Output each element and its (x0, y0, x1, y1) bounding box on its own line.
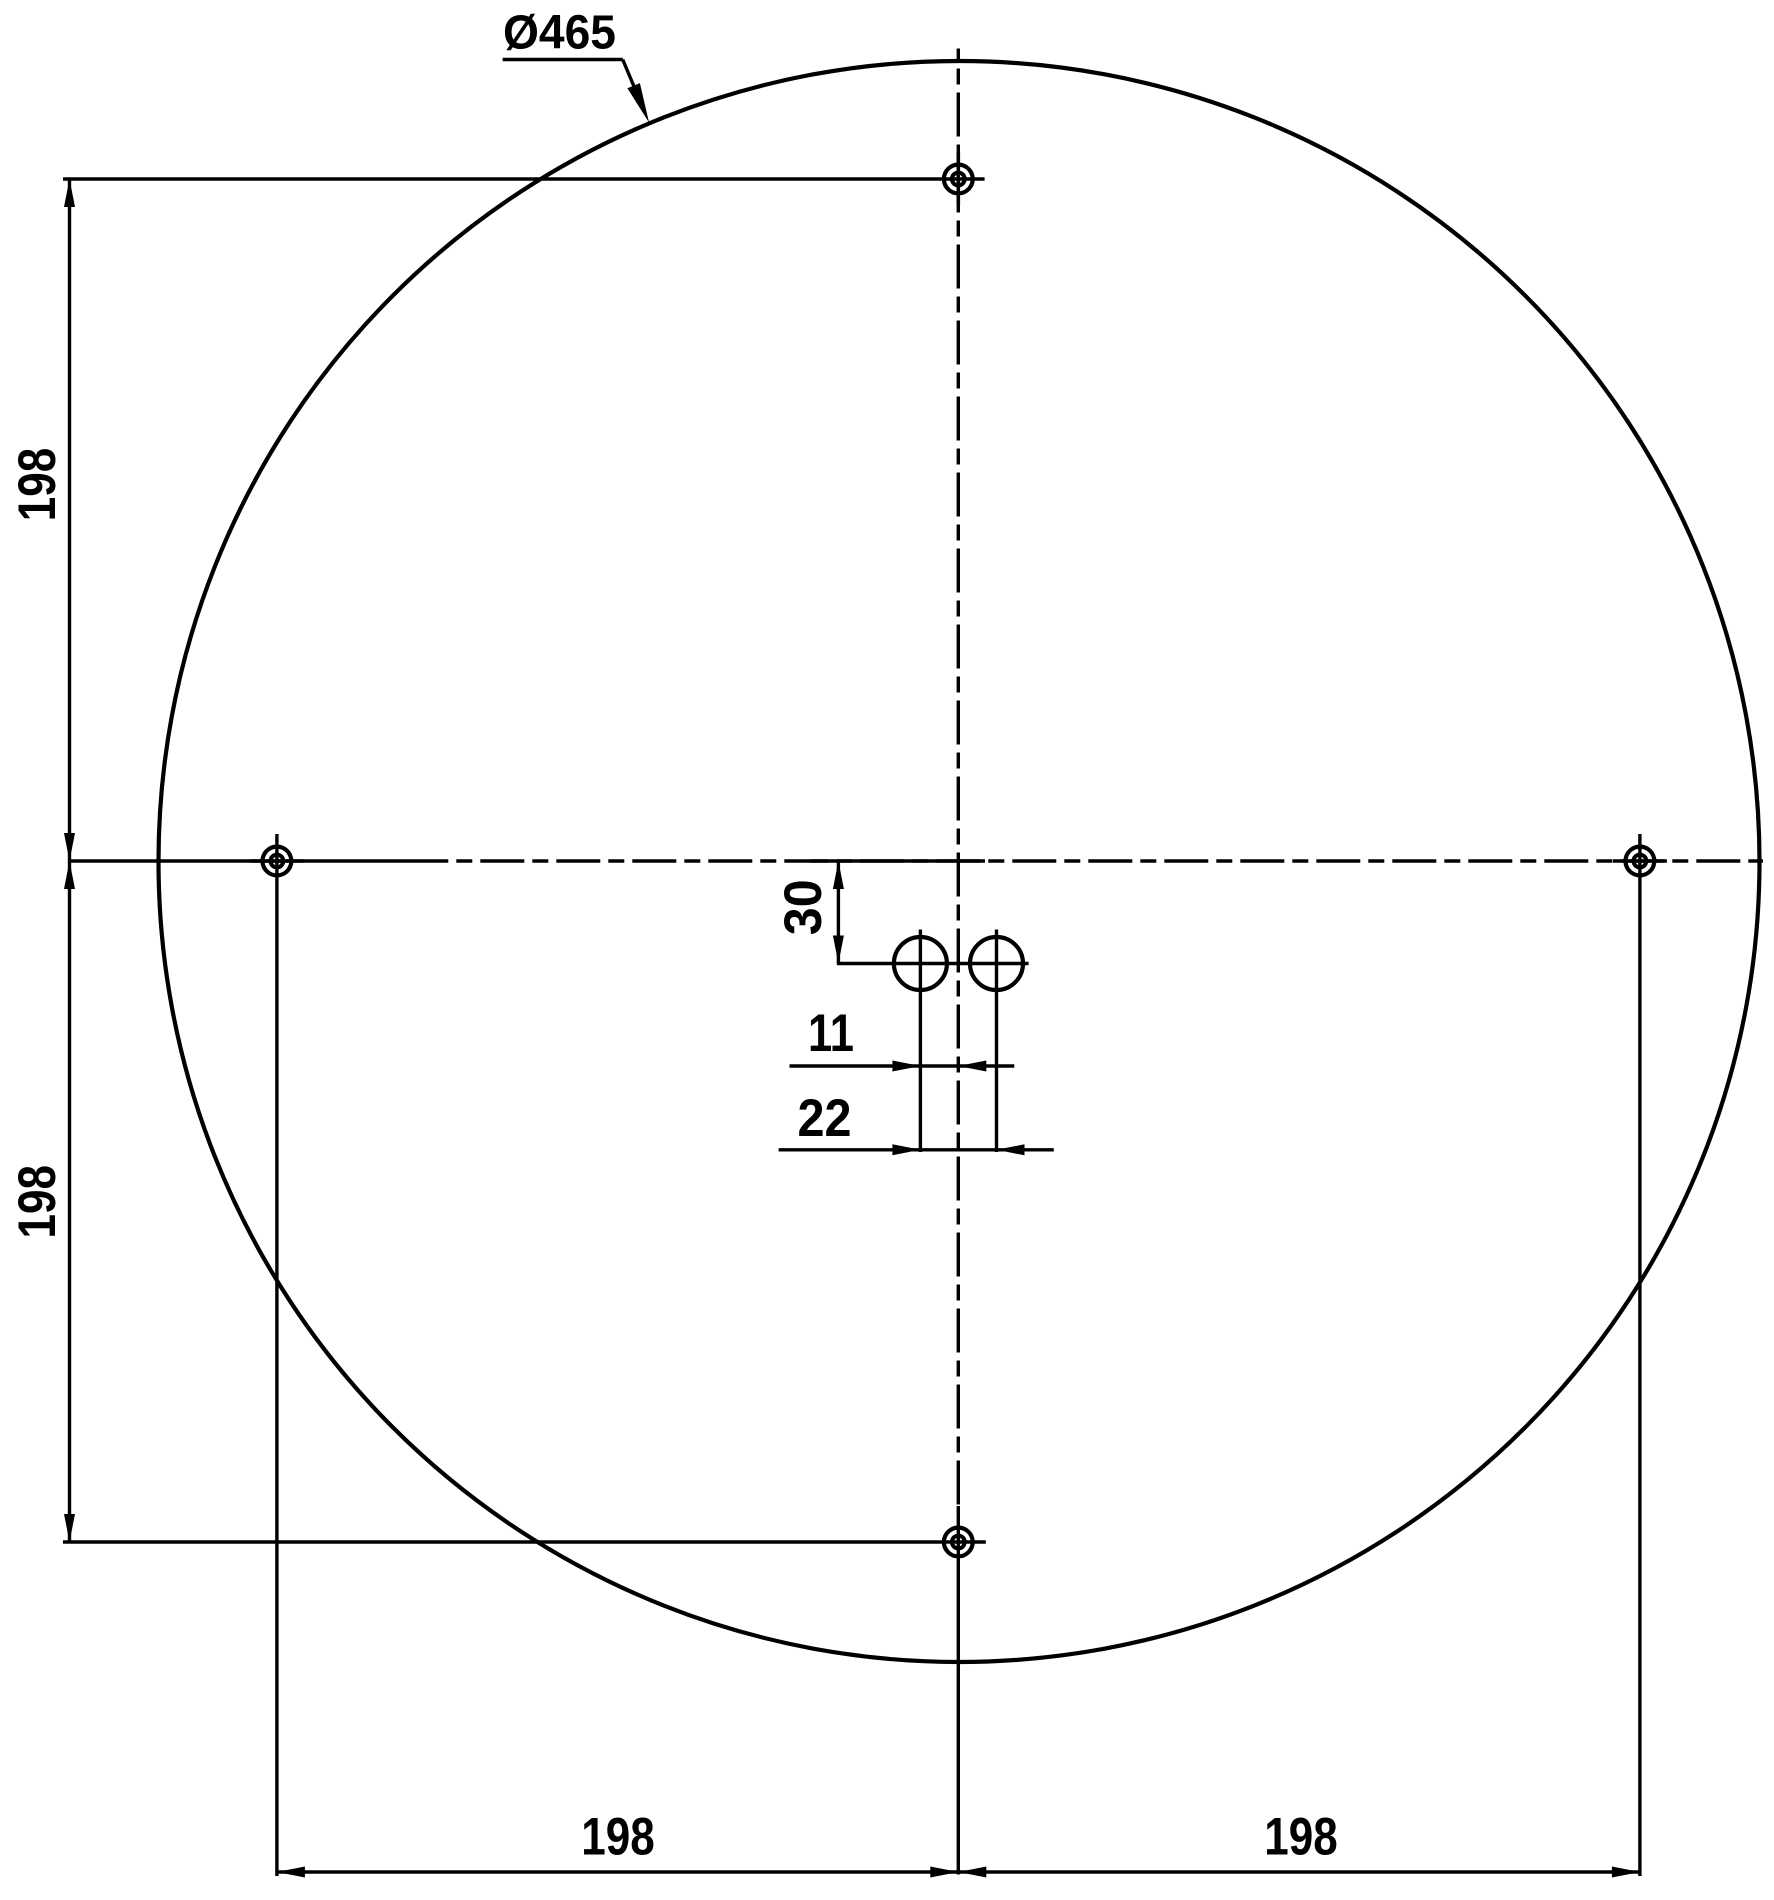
svg-text:11: 11 (808, 1004, 854, 1063)
svg-text:198: 198 (8, 448, 67, 522)
svg-text:198: 198 (8, 1165, 67, 1239)
svg-text:22: 22 (798, 1089, 852, 1148)
svg-text:198: 198 (581, 1808, 655, 1867)
svg-text:30: 30 (774, 879, 833, 935)
svg-text:Ø465: Ø465 (503, 7, 616, 60)
svg-text:198: 198 (1264, 1808, 1338, 1867)
